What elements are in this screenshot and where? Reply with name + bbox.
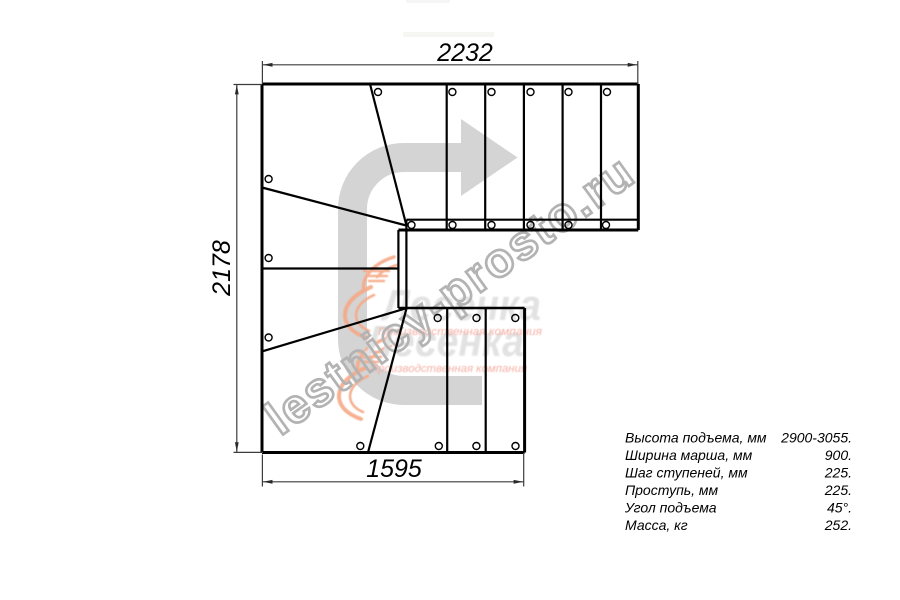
svg-text:2900-3055.: 2900-3055. — [780, 430, 852, 446]
svg-text:Шаг ступеней, мм: Шаг ступеней, мм — [625, 465, 748, 481]
svg-text:252.: 252. — [824, 517, 852, 533]
svg-text:Высота подъема, мм: Высота подъема, мм — [625, 430, 767, 446]
svg-text:225.: 225. — [824, 482, 852, 498]
svg-text:Ширина марша, мм: Ширина марша, мм — [625, 447, 753, 463]
svg-text:45°.: 45°. — [827, 500, 852, 516]
svg-text:225.: 225. — [824, 465, 852, 481]
svg-text:900.: 900. — [825, 447, 852, 463]
svg-text:Проступь, мм: Проступь, мм — [625, 482, 719, 498]
svg-text:2232: 2232 — [436, 39, 493, 67]
svg-text:2178: 2178 — [208, 240, 236, 297]
svg-text:Угол подъема: Угол подъема — [624, 500, 717, 516]
svg-text:1595: 1595 — [366, 455, 422, 483]
svg-text:Масса, кг: Масса, кг — [625, 517, 688, 533]
